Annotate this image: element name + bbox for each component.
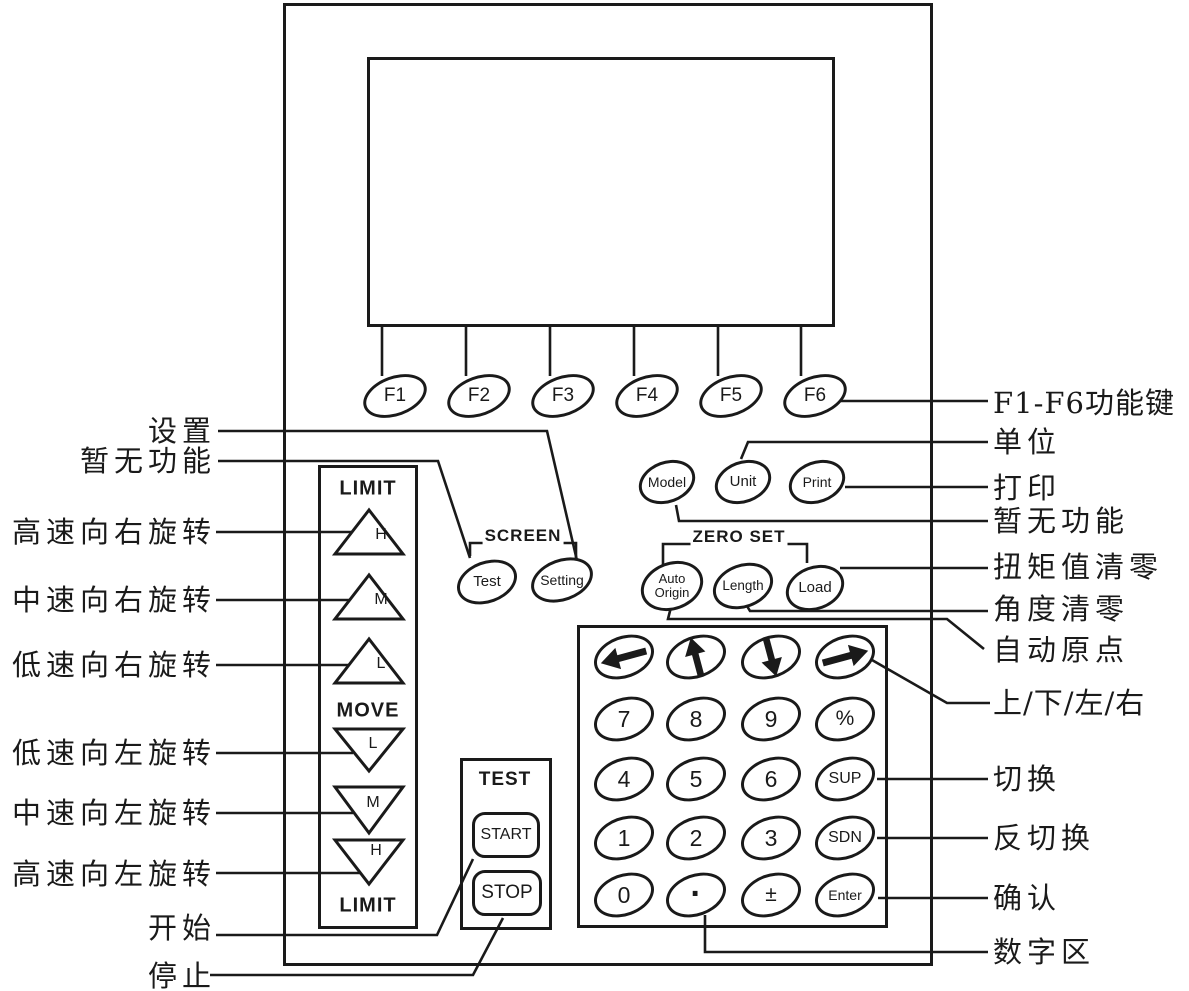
- keypad-key-percent[interactable]: %: [814, 698, 876, 740]
- annotation-low-speed-right: 低速向右旋转: [12, 649, 216, 681]
- keypad-key-0[interactable]: 0: [593, 874, 655, 916]
- key-label: 6: [740, 758, 802, 800]
- limit-bottom-label: LIMIT: [337, 895, 398, 918]
- keypad-key-sup[interactable]: SUP: [814, 758, 876, 800]
- key-label: F6: [782, 376, 848, 416]
- keypad-key-1[interactable]: 1: [593, 817, 655, 859]
- key-label: F4: [614, 376, 680, 416]
- limit-top-label: LIMIT: [337, 478, 398, 501]
- right-arrow-icon: [814, 636, 876, 678]
- key-label: Test: [456, 561, 518, 603]
- key-label: ·: [665, 874, 727, 916]
- arrow-down-key[interactable]: [740, 636, 802, 678]
- key-label: 7: [593, 698, 655, 740]
- annotation-no-function-right: 暂无功能: [993, 505, 1129, 537]
- zero-set-group-label: ZERO SET: [690, 527, 787, 547]
- limit-up-l-letter: L: [377, 655, 386, 673]
- key-label: SUP: [814, 758, 876, 800]
- key-label: %: [814, 698, 876, 740]
- annotation-print: 打印: [993, 472, 1061, 504]
- key-label: Enter: [814, 874, 876, 916]
- move-down-l-letter: L: [369, 735, 378, 753]
- key-test[interactable]: Test: [456, 561, 518, 603]
- keypad-key-9[interactable]: 9: [740, 698, 802, 740]
- start-button[interactable]: START: [472, 812, 540, 858]
- key-f4[interactable]: F4: [614, 376, 680, 416]
- key-print[interactable]: Print: [788, 461, 846, 503]
- key-unit[interactable]: Unit: [714, 461, 772, 503]
- keypad-key-7[interactable]: 7: [593, 698, 655, 740]
- keypad-key-2[interactable]: 2: [665, 817, 727, 859]
- key-f1[interactable]: F1: [362, 376, 428, 416]
- key-load[interactable]: Load: [785, 566, 845, 610]
- key-auto-origin[interactable]: AutoOrigin: [640, 562, 704, 610]
- key-label: F3: [530, 376, 596, 416]
- annotation-start: 开始: [148, 912, 216, 944]
- annotation-low-speed-left: 低速向左旋转: [12, 737, 216, 769]
- limit-up-m-letter: M: [374, 591, 387, 609]
- move-label: MOVE: [335, 700, 402, 723]
- left-arrow-icon: [593, 636, 655, 678]
- arrow-right-key[interactable]: [814, 636, 876, 678]
- key-label: F2: [446, 376, 512, 416]
- keypad-key-plusminus[interactable]: ±: [740, 874, 802, 916]
- key-setting[interactable]: Setting: [530, 559, 594, 601]
- annotation-toggle: 切换: [993, 763, 1061, 795]
- annotation-stop: 停止: [148, 960, 216, 991]
- key-label: 0: [593, 874, 655, 916]
- annotation-unit: 单位: [993, 426, 1061, 458]
- key-label: Load: [785, 566, 845, 610]
- torque-tester-panel-diagram: F1 F2 F3 F4 F5 F6 Model Unit Print SCREE…: [0, 0, 1189, 991]
- move-down-h-letter: H: [370, 842, 382, 860]
- key-label: AutoOrigin: [640, 562, 704, 610]
- key-label: Print: [788, 461, 846, 503]
- annotation-setting: 设置: [148, 415, 216, 447]
- key-label: Model: [638, 461, 696, 503]
- key-label: Setting: [530, 559, 594, 601]
- annotation-high-speed-left: 高速向左旋转: [12, 858, 216, 890]
- limit-move-key-box: [318, 465, 418, 929]
- keypad-key-3[interactable]: 3: [740, 817, 802, 859]
- key-label: SDN: [814, 817, 876, 859]
- arrow-up-key[interactable]: [665, 636, 727, 678]
- key-label: 2: [665, 817, 727, 859]
- annotation-up-down-left-right: 上/下/左/右: [993, 687, 1145, 719]
- key-label: 4: [593, 758, 655, 800]
- stop-button[interactable]: STOP: [472, 870, 542, 916]
- display-screen: [367, 57, 835, 327]
- key-f5[interactable]: F5: [698, 376, 764, 416]
- keypad-key-sdn[interactable]: SDN: [814, 817, 876, 859]
- move-down-m-letter: M: [366, 794, 379, 812]
- key-f2[interactable]: F2: [446, 376, 512, 416]
- key-label: F1: [362, 376, 428, 416]
- annotation-torque-zero: 扭矩值清零: [993, 551, 1163, 583]
- key-label-line2: Origin: [655, 586, 690, 600]
- up-arrow-icon: [665, 636, 727, 678]
- annotation-numeric-area: 数字区: [993, 936, 1095, 968]
- keypad-key-6[interactable]: 6: [740, 758, 802, 800]
- annotation-mid-speed-right: 中速向右旋转: [12, 584, 216, 616]
- annotation-high-speed-right: 高速向右旋转: [12, 516, 216, 548]
- keypad-key-enter[interactable]: Enter: [814, 874, 876, 916]
- key-label: 5: [665, 758, 727, 800]
- annotation-confirm: 确认: [993, 882, 1061, 914]
- test-group-label: TEST: [477, 769, 534, 791]
- keypad-key-4[interactable]: 4: [593, 758, 655, 800]
- annotation-reverse-toggle: 反切换: [993, 822, 1095, 854]
- key-label: Length: [712, 564, 774, 608]
- annotation-angle-zero: 角度清零: [993, 593, 1129, 625]
- key-label: Unit: [714, 461, 772, 503]
- key-f6[interactable]: F6: [782, 376, 848, 416]
- key-label: 1: [593, 817, 655, 859]
- key-label: 3: [740, 817, 802, 859]
- screen-group-label: SCREEN: [483, 526, 564, 546]
- key-label: ±: [740, 874, 802, 916]
- key-label: 9: [740, 698, 802, 740]
- annotation-auto-origin: 自动原点: [993, 634, 1129, 666]
- key-length[interactable]: Length: [712, 564, 774, 608]
- annotation-mid-speed-left: 中速向左旋转: [12, 797, 216, 829]
- keypad-key-5[interactable]: 5: [665, 758, 727, 800]
- key-f3[interactable]: F3: [530, 376, 596, 416]
- key-label-line1: Auto: [659, 572, 686, 586]
- limit-up-h-letter: H: [375, 526, 387, 544]
- arrow-left-key[interactable]: [593, 636, 655, 678]
- key-label: F5: [698, 376, 764, 416]
- annotation-no-function-left: 暂无功能: [80, 445, 216, 477]
- key-label: 8: [665, 698, 727, 740]
- down-arrow-icon: [740, 636, 802, 678]
- keypad-key-8[interactable]: 8: [665, 698, 727, 740]
- annotation-f1-f6: F1-F6功能键: [993, 387, 1175, 419]
- keypad-key-dot[interactable]: ·: [665, 874, 727, 916]
- key-model[interactable]: Model: [638, 461, 696, 503]
